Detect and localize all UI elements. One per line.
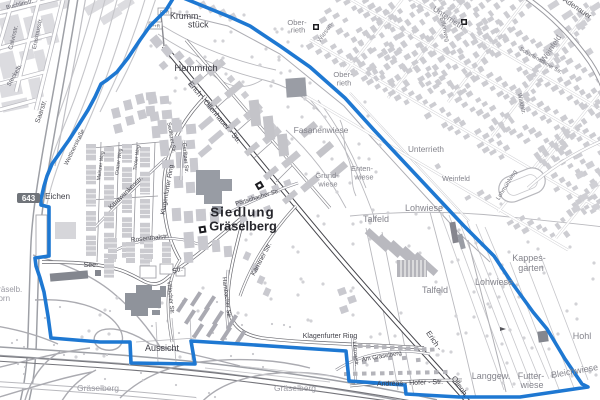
- svg-text:Gräselberg: Gräselberg: [209, 219, 277, 234]
- svg-text:Langgew.: Langgew.: [472, 371, 511, 381]
- svg-text:wiese: wiese: [317, 180, 337, 189]
- svg-text:Gräselb.: Gräselb.: [0, 285, 22, 294]
- svg-text:stück: stück: [188, 20, 209, 30]
- svg-text:born: born: [0, 294, 10, 303]
- svg-text:Unterrieth: Unterrieth: [408, 145, 444, 154]
- svg-text:Fasanenwiese: Fasanenwiese: [294, 125, 349, 135]
- svg-text:Kappes-: Kappes-: [512, 253, 546, 263]
- svg-text:Gräselberg: Gräselberg: [77, 383, 119, 393]
- svg-text:wiese: wiese: [519, 380, 543, 390]
- svg-text:Siedlung: Siedlung: [210, 205, 274, 220]
- svg-text:Hemmrich: Hemmrich: [174, 63, 217, 74]
- svg-text:wiese: wiese: [353, 173, 373, 182]
- svg-text:Hohl: Hohl: [573, 331, 592, 341]
- svg-text:Talfeld: Talfeld: [422, 285, 448, 295]
- svg-text:Weinfeld: Weinfeld: [442, 174, 470, 183]
- svg-text:Aussicht: Aussicht: [145, 343, 180, 353]
- svg-text:Gräselberg: Gräselberg: [274, 383, 316, 393]
- svg-text:Talfeld: Talfeld: [363, 214, 389, 224]
- svg-text:garten: garten: [518, 263, 544, 273]
- svg-text:Eichen: Eichen: [45, 192, 70, 201]
- svg-text:Lohwiese: Lohwiese: [405, 203, 443, 213]
- svg-text:Lohwiese: Lohwiese: [475, 277, 513, 287]
- svg-text:rieth: rieth: [291, 26, 306, 35]
- svg-text:See-: See-: [84, 262, 99, 269]
- svg-text:rieth: rieth: [337, 79, 352, 88]
- svg-text:643: 643: [22, 194, 36, 203]
- svg-text:Klagenfurter Ring: Klagenfurter Ring: [303, 333, 358, 340]
